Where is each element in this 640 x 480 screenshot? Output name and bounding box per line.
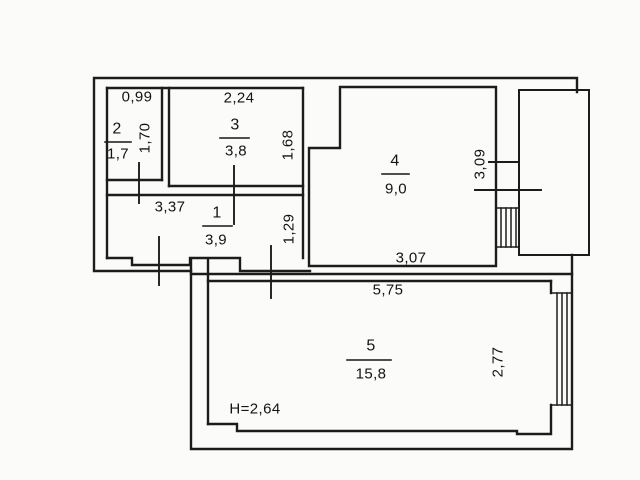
room-4-number: 4 (390, 153, 399, 170)
balcony-outline (519, 90, 589, 255)
wall-room4-outline (309, 87, 496, 266)
dim-room3-width: 2,24 (224, 90, 255, 107)
room-5-number: 5 (366, 338, 375, 355)
room4-balcony-window (496, 208, 519, 247)
dim-room2-width: 0,99 (122, 89, 153, 106)
outer-wall-main (94, 78, 577, 271)
floor-plan-page: 0,99 2 1,7 1,70 2,24 3 3,8 1,68 3,37 1 3… (0, 0, 640, 480)
floor-plan-drawing: 0,99 2 1,7 1,70 2,24 3 3,8 1,68 3,37 1 3… (0, 0, 640, 480)
room-1-area: 3,9 (205, 232, 227, 249)
dim-room5-width: 5,75 (373, 282, 404, 299)
room-5-area: 15,8 (356, 366, 387, 383)
dim-room3-depth: 1,68 (280, 130, 297, 161)
room-2-area: 1,7 (107, 146, 129, 163)
dim-room1-width: 3,37 (155, 199, 186, 216)
dim-room4-depth: 3,09 (472, 149, 489, 180)
room-3-area: 3,8 (225, 143, 247, 160)
dim-room5-depth: 2,77 (490, 347, 507, 378)
room-2-number: 2 (112, 121, 121, 138)
room-1-number: 1 (212, 205, 221, 222)
room5-window (551, 293, 572, 405)
dim-room4-width: 3,07 (396, 250, 427, 267)
dim-room1-depth: 1,29 (281, 214, 298, 245)
dim-room2-depth: 1,70 (137, 123, 154, 154)
room-3-number: 3 (230, 117, 239, 134)
ceiling-height-label: H=2,64 (229, 401, 280, 418)
room-4-area: 9,0 (385, 181, 407, 198)
